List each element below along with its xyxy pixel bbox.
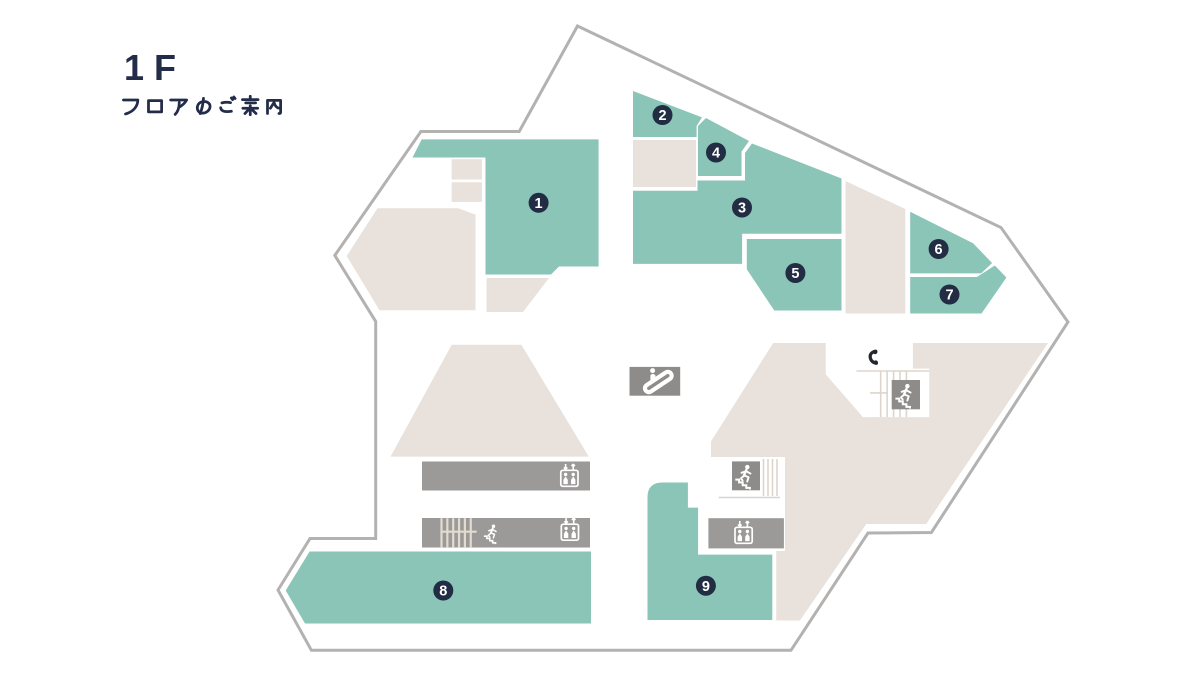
svg-text:4: 4 [712,146,720,162]
svg-text:9: 9 [702,579,710,595]
svg-text:2: 2 [658,108,666,124]
svg-text:5: 5 [791,266,799,282]
svg-text:7: 7 [945,288,953,304]
svg-text:8: 8 [439,584,447,600]
svg-text:1 F: 1 F [124,47,176,88]
svg-text:1: 1 [535,196,543,212]
svg-text:3: 3 [738,201,746,217]
svg-text:6: 6 [935,242,943,258]
